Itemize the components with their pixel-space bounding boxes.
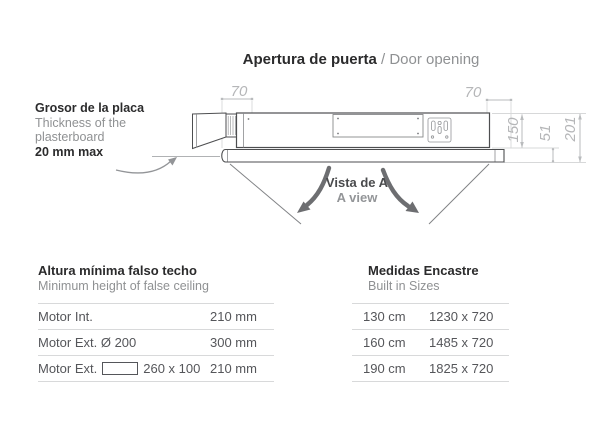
view-label-english: A view [337,190,379,205]
right-table-title-en: Built in Sizes [368,279,509,294]
view-arrow-right [383,170,419,213]
dim-70-left: 70 [231,83,248,100]
right-table-title-es: Medidas Encastre [368,263,509,279]
row-value: 1825 x 720 [429,361,509,376]
row-label: Motor Ext. 260 x 100 [38,361,210,376]
row-label-suffix: 260 x 100 [143,361,200,376]
row-value: 1230 x 720 [429,309,509,324]
bottom-plate [222,150,504,163]
table-row: 190 cm 1825 x 720 [352,355,509,382]
table-row: Motor Ext. 260 x 100 210 mm [38,355,274,382]
row-label-prefix: Motor Ext. [38,361,97,376]
table-row: 160 cm 1485 x 720 [352,329,509,355]
dim-201: 201 [562,116,579,142]
row-label: Motor Ext. Ø 200 [38,335,210,350]
row-label: 160 cm [352,335,429,350]
row-label: Motor Int. [38,309,210,324]
row-value: 300 mm [210,335,274,350]
row-label: 130 cm [352,309,429,324]
dim-51: 51 [537,125,554,142]
built-in-sizes-table: Medidas Encastre Built in Sizes 130 cm 1… [352,263,509,382]
spec-sheet-page: Apertura de puerta / Door opening Grosor… [0,0,600,442]
row-value: 210 mm [210,309,274,324]
leader-arrow [116,157,177,173]
left-table-title-en: Minimum height of false ceiling [38,279,274,294]
motor-duct [193,113,238,149]
row-label: 190 cm [352,361,429,376]
rectangle-symbol-icon [102,362,138,375]
view-label-spanish: Vista de A [326,175,389,190]
dim-150: 150 [505,117,522,143]
false-ceiling-table: Altura mínima falso techo Minimum height… [38,263,274,382]
table-row: Motor Int. 210 mm [38,303,274,329]
view-arrow-left [297,168,329,213]
dim-70-right: 70 [465,84,482,101]
access-panel [333,115,423,138]
table-row: Motor Ext. Ø 200 300 mm [38,329,274,355]
left-table-title-es: Altura mínima falso techo [38,263,274,279]
row-value: 210 mm [210,361,274,376]
row-value: 1485 x 720 [429,335,509,350]
table-row: 130 cm 1230 x 720 [352,303,509,329]
